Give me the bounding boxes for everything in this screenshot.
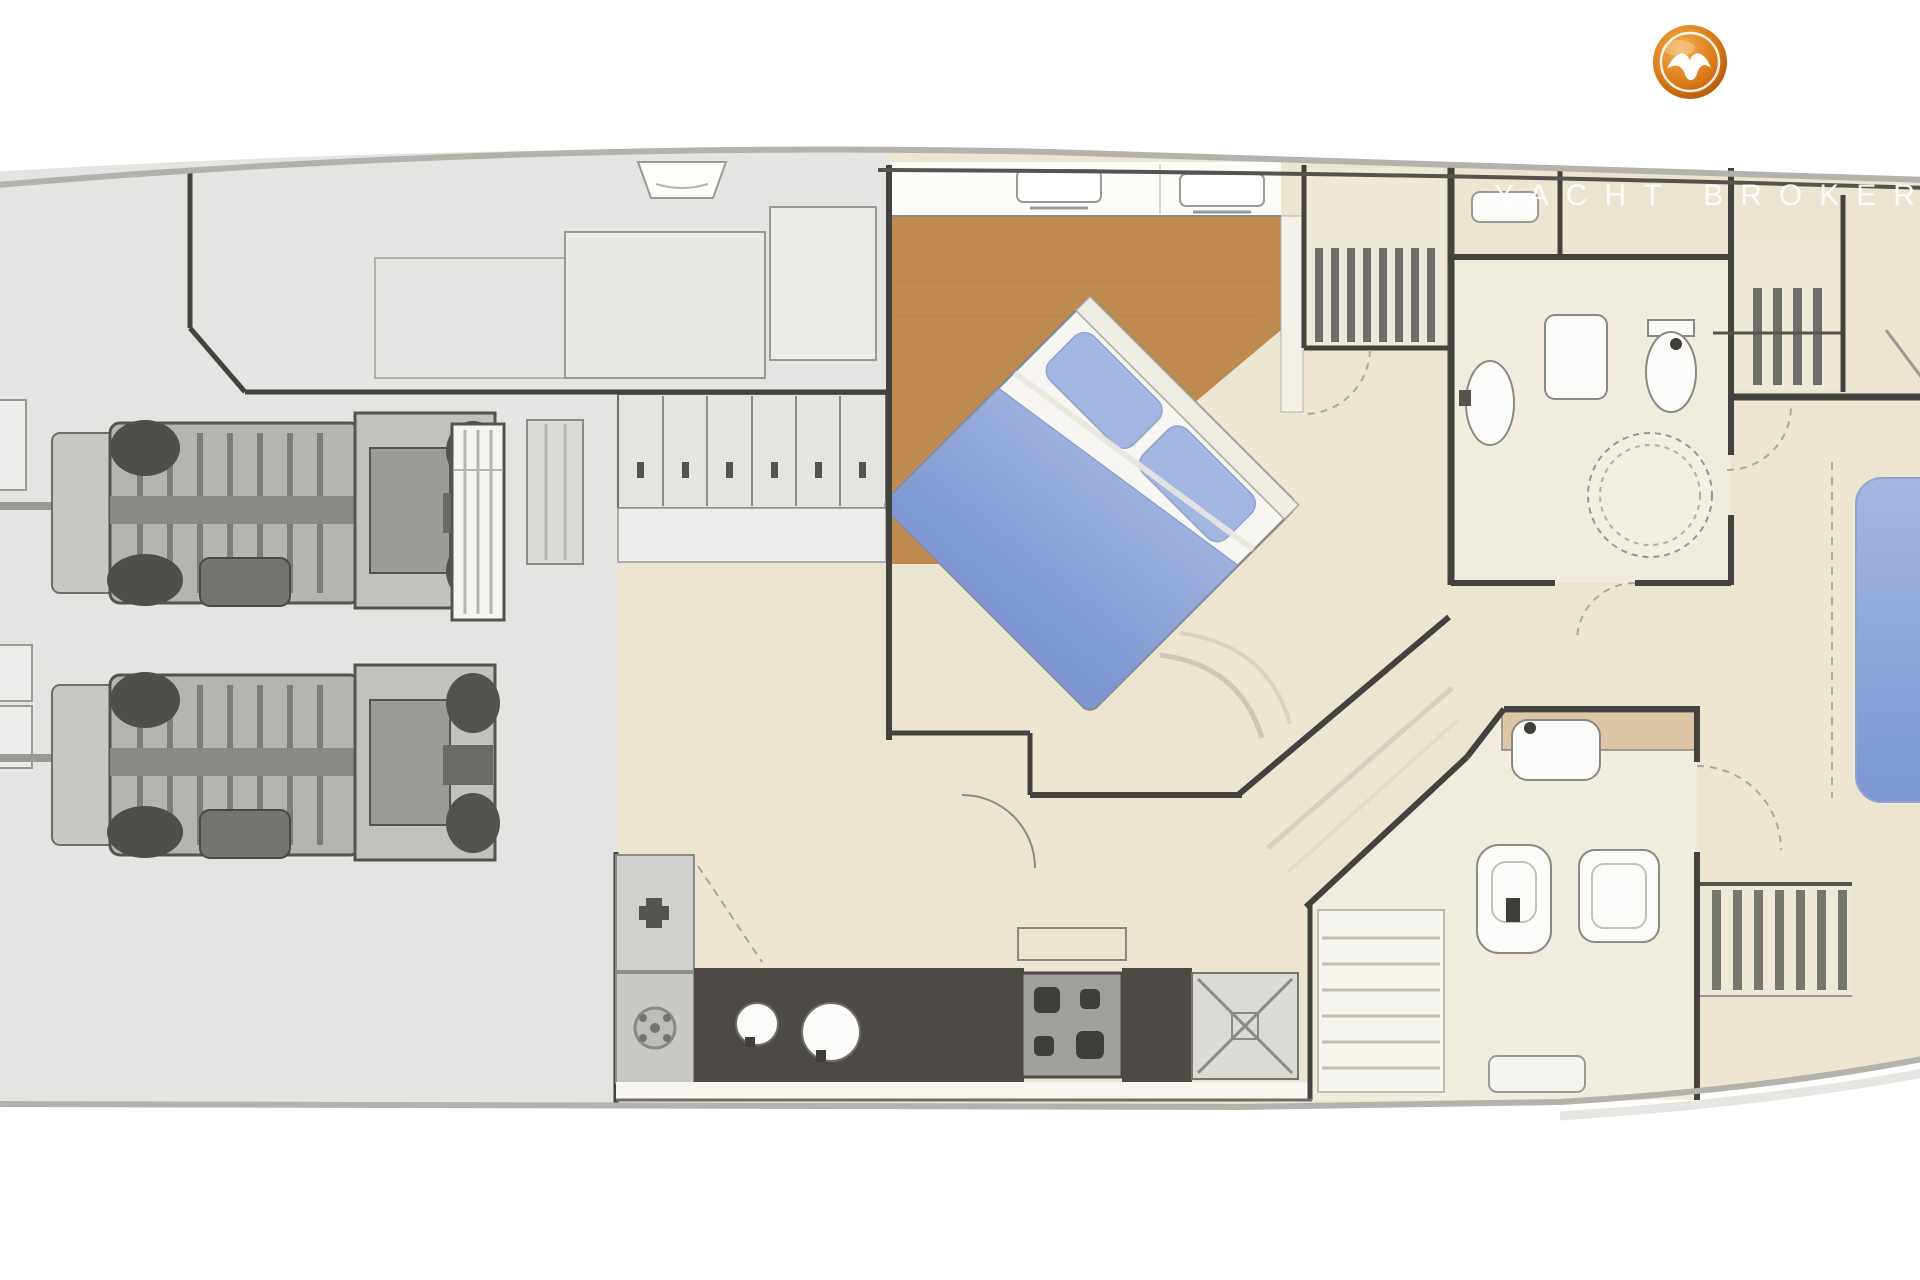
yacht-deck-plan: YACHT BROKERS bbox=[0, 0, 1920, 1280]
drawer bbox=[1489, 1056, 1585, 1092]
stairs-aft bbox=[1700, 884, 1852, 996]
galley-cabinet-sink-unit bbox=[616, 855, 694, 1083]
engine-port bbox=[0, 413, 500, 608]
engine-starboard bbox=[0, 665, 500, 860]
washbasin bbox=[1466, 361, 1514, 445]
deck-hatch bbox=[638, 162, 726, 198]
drawer bbox=[1017, 170, 1101, 202]
galley-hatch-unit bbox=[1192, 973, 1298, 1079]
generator-tank bbox=[452, 424, 504, 620]
watermark-text: YACHT BROKERS bbox=[1494, 179, 1920, 212]
toilet bbox=[1477, 845, 1551, 953]
round-shower bbox=[1588, 433, 1712, 557]
wardrobe bbox=[1281, 216, 1303, 412]
engine-room-cabinet bbox=[527, 420, 583, 564]
yacht-brokers-logo bbox=[1653, 25, 1727, 99]
locker-row bbox=[618, 394, 886, 562]
aft-bed bbox=[1856, 478, 1920, 802]
drawer bbox=[1180, 174, 1264, 206]
stove bbox=[1022, 973, 1122, 1077]
shower-tray bbox=[1545, 315, 1607, 399]
galley-counter bbox=[1122, 968, 1192, 1082]
floorplan-page: YACHT BROKERS bbox=[0, 0, 1920, 1280]
galley-sink bbox=[736, 1003, 778, 1045]
galley-sink bbox=[802, 1003, 860, 1061]
shower-stall bbox=[1318, 910, 1444, 1092]
toilet bbox=[1646, 320, 1696, 412]
bidet bbox=[1579, 850, 1659, 942]
